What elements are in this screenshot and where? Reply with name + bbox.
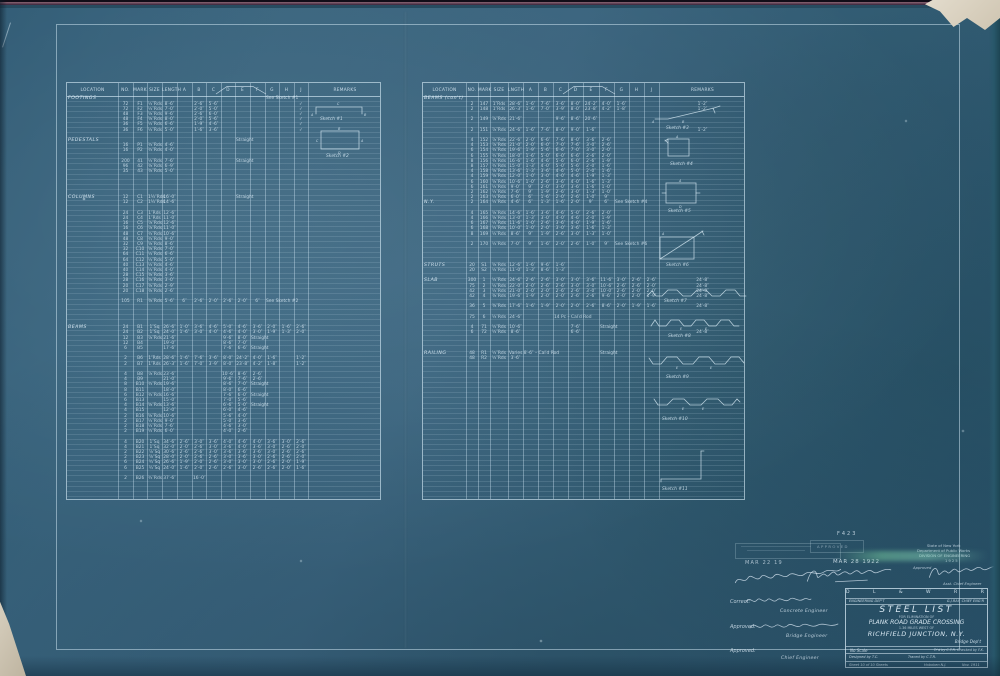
sketch-4-caption: Sketch #4 [670, 162, 693, 167]
table-cell-mark: 72 [479, 330, 489, 335]
table-cell-len: 17′-6″ [163, 346, 176, 351]
table-cell-a: 1′-6″ [524, 128, 537, 133]
section-label: N.Y. [424, 200, 435, 205]
table-cell-e: 23′-8″ [584, 107, 598, 112]
table-cell-no: 16 [119, 148, 132, 153]
table-cell-a: 6″ [178, 299, 191, 304]
table-cell-j: 1′-2″ [295, 362, 307, 367]
table-cell-rem: 24′-8″ [660, 304, 745, 309]
table-cell-d: 2′-6″ [222, 299, 234, 304]
table-cell-f: Straight [251, 393, 269, 398]
table-cell-len: 3′-6″ [509, 356, 522, 361]
table-cell-f: 2′-6″ [251, 466, 264, 471]
table-cell-size: ⅞″Rds [491, 128, 507, 133]
truss-bar-sketch-10: EE [652, 394, 740, 410]
table-cell-h: 1′-3″ [280, 330, 293, 335]
table-cell-f: Straight [600, 325, 618, 330]
table-cell-d: 2′-6″ [569, 294, 582, 299]
table-cell-no: 2 [119, 429, 132, 434]
table-cell-no: 12 [119, 200, 132, 205]
table-cell-b: 7′-0″ [193, 362, 205, 367]
table-cell-size: ⅜″Rds [148, 289, 161, 294]
table-cell-len: 4′-0″ [163, 148, 176, 153]
table-cell-len: 14′-6″ [163, 200, 176, 205]
table-cell-b: 2′-6″ [193, 299, 205, 304]
sheet-title: STEEL LIST [846, 605, 987, 615]
table-cell-g: 2′-6″ [266, 466, 278, 471]
table-cell-no: 48 [467, 356, 477, 361]
table-cell-mark: C2 [134, 200, 146, 205]
section-label: RAILING [424, 351, 446, 356]
stamp-line [741, 546, 811, 547]
table-cell-len: 4′-6″ [509, 200, 522, 205]
table-cell-b: 3′-0″ [193, 330, 205, 335]
blueprint-scan: LOCATIONNO.MARKSIZELENGTHABCDEFGHJREMARK… [0, 0, 1000, 676]
table-cell-mark: B25 [134, 466, 146, 471]
table-cell-j: ✓ [295, 128, 307, 133]
sketch-1-caption: Sketch #1 [320, 117, 343, 122]
table-cell-c: 2′-6″ [554, 232, 567, 237]
table-cell-c: 14 Pc – Cal′d Rod [554, 315, 592, 320]
table-cell-mark: S2 [479, 268, 489, 273]
table-cell-e: 1′-6″ [584, 128, 598, 133]
table-cell-size: ⅜″Rds [148, 169, 161, 174]
table-cell-len: 26′-3″ [509, 107, 522, 112]
table-cell-mark: F6 [134, 128, 146, 133]
table-cell-c: 2′-0″ [554, 242, 567, 247]
table-cell-g: 2′-0″ [615, 304, 628, 309]
bent-bar-sketch-3: AB [652, 104, 724, 124]
table-cell-size: ¾″Rds [148, 476, 161, 481]
sketch-10-caption: Sketch #10 [662, 417, 688, 422]
table-cell-d: 7′-6″ [222, 346, 234, 351]
section-label: COLUMNS [68, 195, 95, 200]
table-cell-size: ¾″Rds [148, 148, 161, 153]
table-cell-e: 2′-6″ [236, 429, 249, 434]
table-cell-no: 35 [119, 169, 132, 174]
concrete-engineer-signature [744, 593, 812, 607]
table-cell-a: 1′-6″ [178, 362, 191, 367]
table-cell-mark: C18 [134, 289, 146, 294]
table-cell-c: 3′-9″ [554, 107, 567, 112]
table-cell-mark: 164 [479, 200, 489, 205]
table-cell-g: 1′-8″ [615, 107, 628, 112]
table-cell-f: Straight [251, 403, 269, 408]
table-cell-e: 6′-6″ [236, 346, 249, 351]
no-scale-label: No Scale [850, 648, 867, 653]
stirrup-sketch-2: BCAD [316, 126, 364, 154]
table-cell-f: Straight [600, 351, 618, 356]
table-cell-e: 2′-6″ [584, 304, 598, 309]
table-cell-len: 26′-3″ [163, 362, 176, 367]
table-cell-size: ½″Rds [148, 128, 161, 133]
table-cell-len: 24′-6″ [509, 128, 522, 133]
table-cell-a: 1′-3″ [524, 268, 537, 273]
sketch-6-caption: Sketch #6 [666, 263, 689, 268]
svg-text:A: A [651, 120, 655, 124]
table-cell-f: 6″ [600, 200, 613, 205]
table-cell-size: ⅜″Rds [491, 304, 507, 309]
stirrup-sketch-4: A [664, 134, 694, 160]
table-cell-len: 17′-6″ [509, 304, 522, 309]
sketch-9-caption: Sketch #9 [666, 375, 689, 380]
table-cell-size: ⅜″Rds [148, 299, 161, 304]
header-bar-diagram [423, 83, 746, 96]
table-cell-mark: 151 [479, 128, 489, 133]
table-cell-len: 7′-0″ [509, 242, 522, 247]
table-cell-len: 24′-6″ [509, 315, 522, 320]
table-cell-d: 8′-0″ [222, 362, 234, 367]
table-cell-a: 1′-9″ [524, 294, 537, 299]
scan-edge-top [0, 0, 1000, 8]
column-line-j [294, 83, 295, 499]
svg-text:C: C [316, 139, 319, 143]
green-smear-artifact [836, 551, 988, 561]
table-cell-d: 8′-0″ [569, 107, 582, 112]
approved-label-2: Approved: [730, 648, 756, 654]
table-cell-d: 8′-6″ [569, 117, 582, 122]
header-separator [423, 96, 744, 97]
table-cell-size: ½″Rds [148, 429, 161, 434]
table-cell-g: 1′-8″ [266, 362, 278, 367]
table-cell-mark: 5 [479, 304, 489, 309]
column-line-c [206, 83, 207, 499]
table-cell-e: Straight [236, 159, 254, 164]
table-cell-e: Straight [236, 138, 254, 143]
table-cell-g: See Sketch #2 [266, 299, 298, 304]
table-cell-e: 9″ [584, 200, 598, 205]
scan-edge-left [0, 0, 7, 676]
railroad-name: D L & W R R [846, 590, 987, 595]
section-label: BEAMS [68, 325, 87, 330]
table-cell-no: 42 [467, 294, 477, 299]
table-cell-size: ½″Rds [491, 356, 507, 361]
table-cell-b: 7′-0″ [539, 107, 552, 112]
table-cell-e: 2′-0″ [236, 299, 249, 304]
table-cell-d: 2′-6″ [222, 466, 234, 471]
table-cell-len: 8′-6″ [509, 330, 522, 335]
table-cell-d: 4′-0″ [222, 429, 234, 434]
table-cell-e: 1′-3″ [584, 232, 598, 237]
table-cell-no: 2 [467, 117, 477, 122]
approved-box-label: APPROVED [817, 544, 849, 549]
svg-text:A: A [678, 179, 682, 183]
table-cell-b: 1′-9″ [539, 232, 552, 237]
table-cell-no: 2 [119, 362, 132, 367]
table-cell-g: See Sketch #1 [266, 96, 298, 101]
scan-edge-right [989, 0, 1000, 676]
table-cell-h: 2′-0″ [280, 466, 293, 471]
column-line-b [192, 83, 193, 499]
engineer-signature [805, 562, 896, 587]
table-cell-mark: B26 [134, 476, 146, 481]
table-cell-a: 1′-6″ [178, 330, 191, 335]
table-cell-mark: 170 [479, 242, 489, 247]
column-line-d [221, 83, 222, 499]
table-cell-b: 2′-0″ [539, 294, 552, 299]
table-cell-c: 3′-9″ [207, 362, 220, 367]
svg-text:B: B [364, 113, 367, 117]
table-cell-no: 75 [467, 315, 477, 320]
table-cell-len: 5′-0″ [163, 169, 176, 174]
table-cell-no: 6 [467, 330, 477, 335]
table-cell-len: 8′-6″ [509, 232, 522, 237]
table-cell-g: See Sketch #4 [615, 200, 647, 205]
table-cell-size: 1¼″Rds [148, 200, 161, 205]
sketch-7-caption: Sketch #7 [664, 299, 687, 304]
table-cell-size: ⅞″Rds [148, 372, 161, 377]
table-cell-d: 3′-0″ [569, 232, 582, 237]
scan-edge-bottom [0, 656, 1000, 676]
table-cell-size: ½″Rds [491, 242, 507, 247]
table-cell-b: 16′-0″ [193, 476, 205, 481]
table-cell-c: 2′-6″ [207, 466, 220, 471]
truss-bar-sketch-7 [646, 287, 746, 299]
hooked-stirrup-sketch-6: A [656, 228, 706, 264]
table-cell-c: 1′-3″ [554, 268, 567, 273]
table-cell-no: 105 [119, 299, 132, 304]
table-cell-len: 37′-6″ [163, 476, 176, 481]
table-cell-no: 20 [119, 289, 132, 294]
table-cell-mark: B7 [134, 362, 146, 367]
column-line-f [250, 83, 251, 499]
svg-text:C: C [337, 102, 340, 106]
column-line-rem [308, 83, 309, 499]
bridge-engineer-signature [748, 618, 840, 633]
svg-text:A: A [675, 135, 679, 139]
table-cell-b: 8′-6″ [539, 268, 552, 273]
table-cell-mark: R2 [479, 356, 489, 361]
asst-chief-role: Asst. Chief Engineer [943, 581, 981, 586]
table-cell-size: ⅜″Rds [491, 294, 507, 299]
table-cell-no: 2 [119, 476, 132, 481]
table-cell-mark: R1 [134, 299, 146, 304]
table-cell-no: 6 [119, 466, 132, 471]
table-cell-size: ⅞″Rds [148, 336, 161, 341]
bent-bar-sketch-1: ACB [310, 101, 368, 117]
table-cell-c: 9′-6″ [554, 117, 567, 122]
table-cell-len: 11′-0″ [509, 268, 522, 273]
angle-bar-sketch-11 [656, 448, 708, 486]
table-cell-c: 1′-6″ [554, 200, 567, 205]
truss-bar-sketch-9: EE [648, 353, 744, 369]
table-cell-mark: 148 [479, 107, 489, 112]
table-cell-no: 2 [467, 128, 477, 133]
table-cell-a: 9″ [524, 242, 537, 247]
table-cell-no: 8 [467, 232, 477, 237]
table-cell-len: 2′-6″ [163, 289, 176, 294]
table-cell-b: 2′-0″ [193, 466, 205, 471]
approvals-block: Correct: Concrete Engineer Approved: Bri… [728, 592, 850, 666]
table-cell-mark: 43 [134, 169, 146, 174]
table-cell-d: 2′-6″ [569, 242, 582, 247]
table-cell-b: 1′-3″ [539, 200, 552, 205]
table-cell-len: 21′-6″ [509, 117, 522, 122]
table-cell-c: 8′-0″ [554, 128, 567, 133]
table-cell-size: ¾″Rds [148, 382, 161, 387]
table-cell-no: 36 [467, 304, 477, 309]
table-cell-f: 9′-6″ [600, 294, 613, 299]
file-code: F423 [837, 531, 857, 537]
table-cell-size: ¾″Sq [148, 466, 161, 471]
table-cell-len: 19′-6″ [509, 294, 522, 299]
bridge-engineer-role: Bridge Engineer [786, 634, 827, 639]
table-cell-len: 24′-0″ [163, 466, 176, 471]
section-label: BEAMS (con't) [424, 96, 464, 101]
stamp-line [747, 550, 805, 551]
table-cell-no: 2 [467, 107, 477, 112]
traced-checked-line: Tr'd by C.T.R. Checked by F.K. [934, 648, 984, 652]
table-cell-c: 2′-0″ [554, 304, 567, 309]
column-line-h [279, 83, 280, 499]
section-label: FOOTINGS [68, 96, 96, 101]
column-line-g [265, 83, 266, 499]
table-cell-c: 3′-6″ [207, 128, 220, 133]
truss-bar-sketch-8: EE [650, 316, 742, 330]
table-cell-h: 1′-9″ [630, 304, 643, 309]
table-cell-f: 1′-0″ [600, 232, 613, 237]
table-cell-f: 9″ [600, 242, 613, 247]
svg-text:A: A [310, 113, 314, 117]
sketch-3-caption: Sketch #3 [666, 126, 689, 131]
table-cell-a: 6″ [524, 200, 537, 205]
sketch-5-caption: Sketch #5 [668, 209, 691, 214]
table-cell-f: 4′-2″ [600, 107, 613, 112]
table-cell-mark: B5 [134, 346, 146, 351]
table-cell-no: 6 [119, 346, 132, 351]
table-cell-e: 2′-6″ [584, 294, 598, 299]
svg-text:A: A [661, 232, 665, 236]
section-label: STRUTS [424, 263, 445, 268]
table-cell-size: ⅝″Rds [148, 403, 161, 408]
table-cell-a: 1′-6″ [178, 466, 191, 471]
table-cell-len: 5′-0″ [163, 128, 176, 133]
table-cell-size: ½″Rds [491, 200, 507, 205]
table-cell-len: 5′-6″ [163, 299, 176, 304]
table-cell-d: 6′-6″ [569, 330, 582, 335]
crossing-name: PLANK ROAD GRADE CROSSING [846, 619, 987, 626]
header-separator [67, 96, 380, 97]
column-line-a [177, 83, 178, 499]
column-line-e [235, 83, 236, 499]
table-cell-no: 20 [467, 268, 477, 273]
bridge-dept-label: Bridge Dep't [955, 639, 981, 644]
sketch-11-caption: Sketch #11 [662, 487, 688, 492]
sketch-2-caption: Sketch #2 [326, 154, 349, 159]
table-cell-a: 1′-6″ [524, 304, 537, 309]
table-cell-mark: 6 [479, 315, 489, 320]
table-cell-f: 8′-6″ [600, 304, 613, 309]
place-name: RICHFIELD JUNCTION, N.Y. [846, 630, 987, 638]
table-cell-f: 4′-2″ [251, 362, 264, 367]
header-bar-diagram [67, 83, 382, 96]
dept-label: ENGINEERING DEP'T [849, 599, 885, 603]
table-cell-j: 1′-6″ [295, 466, 307, 471]
date-stamp-left: MAR 22 19 [745, 560, 783, 566]
table-cell-d: 2′-0″ [569, 200, 582, 205]
table-cell-len: 6′-0″ [163, 429, 176, 434]
table-cell-size: 1″Rds [148, 362, 161, 367]
table-cell-mark: B19 [134, 429, 146, 434]
section-label: SLAB [424, 278, 438, 283]
table-cell-d: 9′-0″ [569, 128, 582, 133]
table-cell-b: 1′-6″ [193, 128, 205, 133]
table-cell-c: 2′-0″ [554, 294, 567, 299]
table-cell-b: 1′-9″ [539, 304, 552, 309]
svg-text:B: B [682, 120, 685, 124]
concrete-engineer-role: Concrete Engineer [780, 609, 828, 614]
table-cell-no: 2 [467, 200, 477, 205]
table-cell-e: 3′-0″ [236, 466, 249, 471]
stirrup-sketch-5: AD [660, 178, 702, 208]
table-cell-d: 2′-0″ [569, 304, 582, 309]
table-cell-f: Straight [251, 336, 269, 341]
chief-engineer-label: G.J.RAY, CHIEF ENG'R [947, 599, 984, 603]
table-cell-size: 1″Rds [491, 107, 507, 112]
svg-text:A: A [360, 139, 364, 143]
table-cell-e: 20′-6″ [584, 117, 598, 122]
table-cell-f: Straight [251, 382, 269, 387]
table-cell-no: 2 [467, 242, 477, 247]
table-cell-f: Straight [251, 346, 269, 351]
table-cell-e: 1′-0″ [584, 242, 598, 247]
sketch-8-caption: Sketch #8 [668, 334, 691, 339]
table-cell-size: ¼″Rds [491, 315, 507, 320]
table-cell-h: 2′-0″ [630, 294, 643, 299]
section-label: PEDESTALS [68, 138, 99, 143]
table-cell-b: 7′-6″ [539, 128, 552, 133]
divider [846, 653, 987, 654]
table-cell-g: 2′-0″ [615, 294, 628, 299]
table-cell-no: 36 [119, 128, 132, 133]
table-cell-g: See Sketch #6 [615, 242, 647, 247]
table-cell-mark: 149 [479, 117, 489, 122]
table-cell-a: 9″ [524, 232, 537, 237]
table-cell-c: 4′-0″ [207, 330, 220, 335]
table-cell-j: 2′-0″ [295, 330, 307, 335]
table-cell-size: ¾″Rds [148, 393, 161, 398]
table-cell-size: ½″Rds [491, 268, 507, 273]
table-cell-e: 23′-8″ [236, 362, 249, 367]
table-cell-mark: P2 [134, 148, 146, 153]
table-cell-c: 2′-0″ [207, 299, 220, 304]
svg-text:B: B [338, 127, 341, 131]
table-cell-f: 6″ [251, 299, 264, 304]
table-cell-b: 1′-6″ [539, 242, 552, 247]
table-cell-size: ½″Rds [491, 232, 507, 237]
table-cell-size: ⅞″Rds [491, 117, 507, 122]
table-cell-size: ½″Rds [491, 330, 507, 335]
table-cell-a: 1′-6″ [524, 107, 537, 112]
table-cell-mark: 4 [479, 294, 489, 299]
table-cell-e: Straight [236, 195, 254, 200]
table-cell-j: 1′-6″ [645, 304, 658, 309]
table-cell-mark: 169 [479, 232, 489, 237]
